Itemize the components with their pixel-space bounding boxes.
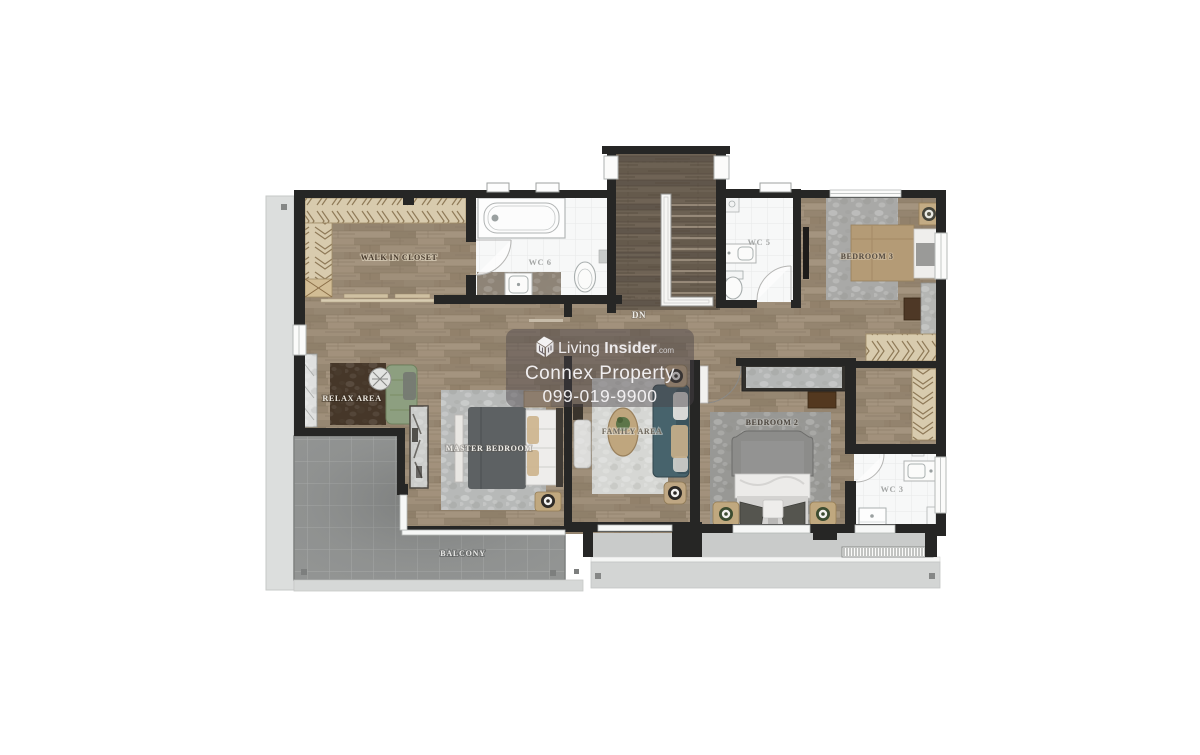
svg-text:WC 5: WC 5 (747, 237, 770, 247)
svg-text:BALCONY: BALCONY (440, 549, 486, 558)
svg-text:RELAX AREA: RELAX AREA (322, 394, 381, 403)
svg-text:WC 6: WC 6 (528, 257, 551, 267)
svg-text:BEDROOM 2: BEDROOM 2 (746, 418, 799, 427)
svg-text:DN: DN (632, 310, 646, 320)
svg-text:FAMILY AREA: FAMILY AREA (602, 427, 663, 436)
svg-text:WC 3: WC 3 (880, 484, 903, 494)
svg-text:099-019-9900: 099-019-9900 (543, 386, 658, 406)
svg-text:WALK IN CLOSET: WALK IN CLOSET (361, 253, 438, 262)
svg-text:MASTER BEDROOM: MASTER BEDROOM (446, 444, 533, 453)
svg-text:BEDROOM 3: BEDROOM 3 (841, 252, 894, 261)
svg-text:Connex Property: Connex Property (525, 363, 675, 384)
